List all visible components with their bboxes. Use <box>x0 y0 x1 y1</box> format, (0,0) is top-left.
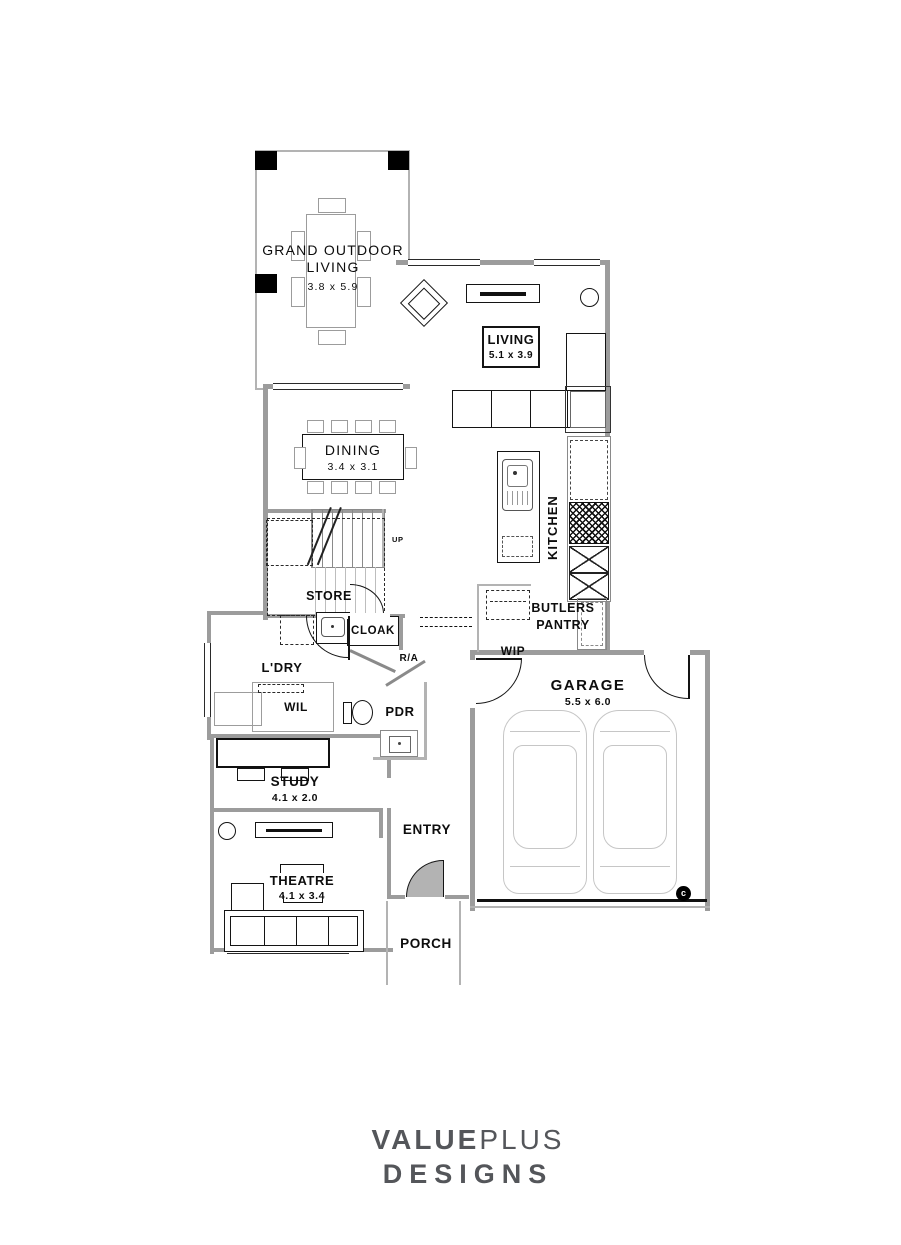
pdr-wall-right <box>424 682 427 760</box>
garage-rear-door-swing <box>644 655 688 699</box>
tv-screen <box>266 829 322 832</box>
wip-wall-h <box>477 584 531 586</box>
copyright-icon: c <box>676 886 691 901</box>
wall-laundry-top <box>207 611 267 615</box>
room-label-store: STORE <box>306 589 352 603</box>
bulkhead-dashed-line <box>420 617 472 618</box>
dining-chair <box>355 481 372 494</box>
room-dims-grand-outdoor-living: 3.8 x 5.9 <box>307 281 358 293</box>
toilet-cistern <box>343 702 352 724</box>
laundry-door-opening <box>346 613 390 619</box>
dining-chair <box>331 481 348 494</box>
room-label-living: LIVING <box>488 332 535 347</box>
window <box>408 259 480 266</box>
wall-garage-right <box>705 650 710 911</box>
room-label-laundry: L'DRY <box>262 660 303 675</box>
laundry-door <box>348 616 350 660</box>
window <box>273 383 403 390</box>
study-desk <box>216 738 330 768</box>
theatre-sofa <box>224 910 364 952</box>
side-table-round <box>580 288 599 307</box>
room-label-cloak: CLOAK <box>351 625 395 637</box>
porch-wall-left <box>386 901 388 985</box>
wip-wall-v <box>477 584 479 652</box>
sofa-seat-inner <box>230 916 358 946</box>
kitchen-sink <box>502 459 533 511</box>
speaker-bracket <box>283 895 323 903</box>
fridge <box>565 386 611 433</box>
pdr-wall-bottom <box>373 757 427 760</box>
dining-chair <box>294 447 306 469</box>
stairs-up-label: UP <box>392 535 404 544</box>
garage-rear-door <box>688 655 690 699</box>
room-label-wip: WIP <box>501 644 525 658</box>
brand-name-light: PLUS <box>479 1124 564 1155</box>
car-roof <box>603 745 667 849</box>
car-bonnet-line <box>600 731 670 732</box>
room-label-kitchen: KITCHEN <box>545 482 560 560</box>
laundry-door-swing <box>306 616 348 658</box>
cooktop <box>569 502 609 544</box>
bulkhead-dashed-line <box>420 626 472 627</box>
room-label-pdr: PDR <box>385 704 414 719</box>
cloak-cupboard: CLOAK <box>347 616 399 646</box>
sofa-seat-line <box>530 391 531 427</box>
room-label-butlers-pantry: BUTLERS PANTRY <box>528 600 598 634</box>
armchair-cushion <box>408 287 441 320</box>
car-rear-line <box>600 866 670 867</box>
room-dims-dining: 3.4 x 3.1 <box>327 461 378 473</box>
dining-chair <box>307 420 324 433</box>
room-dims-study: 4.1 x 2.0 <box>272 792 318 804</box>
sofa-seat-line <box>296 917 297 945</box>
room-label-study: STUDY <box>271 774 320 789</box>
outdoor-chair <box>357 277 371 307</box>
porch-wall-right <box>459 901 461 985</box>
room-label-theatre: THEATRE <box>270 873 335 888</box>
car <box>503 710 587 894</box>
room-dims-living: 5.1 x 3.9 <box>489 350 533 361</box>
sofa-chaise <box>566 333 606 393</box>
wil-shelf <box>258 684 304 693</box>
outdoor-boundary-top <box>256 150 409 152</box>
oven-appliance <box>569 573 609 600</box>
speaker-bracket <box>280 864 324 873</box>
room-label-entry: ENTRY <box>403 822 451 837</box>
floor-plan-page: GRAND OUTDOOR LIVING 3.8 x 5.9 PORCH GAR… <box>0 0 901 1245</box>
pantry-bench-line <box>490 601 526 602</box>
armchair <box>400 279 448 327</box>
toilet <box>352 700 373 725</box>
fridge-inner <box>570 391 606 428</box>
garage-entry-door-swing <box>476 658 522 704</box>
vanity-tap <box>398 742 401 745</box>
room-label-grand-outdoor-living: GRAND OUTDOOR LIVING <box>253 242 413 276</box>
brand-name: VALUEPLUS <box>372 1124 565 1156</box>
dining-chair <box>405 447 417 469</box>
dining-chair <box>355 420 372 433</box>
brand-line2: DESIGNS <box>372 1159 565 1190</box>
post <box>388 151 409 170</box>
tv-unit <box>255 822 333 838</box>
theatre-sofa-chaise <box>231 883 264 912</box>
car-roof <box>513 745 577 849</box>
brand-name-strong: VALUE <box>372 1124 480 1155</box>
window <box>534 259 600 266</box>
post <box>255 151 277 170</box>
wall-study-left <box>210 734 214 954</box>
island-overhang <box>502 536 533 557</box>
tv-unit <box>466 284 540 303</box>
garage-panel-door <box>477 899 707 902</box>
room-label-porch: PORCH <box>400 936 452 951</box>
return-air-label: R/A <box>399 653 418 664</box>
sink-tap <box>513 471 517 475</box>
outdoor-chair <box>318 198 346 213</box>
wall-theatre-top <box>210 808 383 812</box>
sink-drainer <box>507 491 528 505</box>
sink-bowl <box>507 465 528 487</box>
car-bonnet-line <box>510 731 580 732</box>
brand-logo: VALUEPLUS DESIGNS <box>372 1124 565 1190</box>
car <box>593 710 677 894</box>
vanity <box>380 730 418 757</box>
room-label-dining: DINING <box>325 442 381 458</box>
sofa-seat-line <box>264 917 265 945</box>
pantry-bench <box>486 590 530 620</box>
wall-theatre-top-return <box>379 808 383 838</box>
window <box>204 643 211 717</box>
outdoor-chair <box>291 277 305 307</box>
sofa-seat-line <box>491 391 492 427</box>
wall-cloak-right <box>399 614 403 650</box>
overhead-cupboard <box>570 440 608 500</box>
garage-door-outer-line <box>470 906 710 908</box>
tv-screen <box>480 292 526 296</box>
front-door-swing <box>406 860 443 897</box>
dining-chair <box>331 420 348 433</box>
desk-chair <box>237 768 265 781</box>
room-label-garage: GARAGE <box>551 677 626 694</box>
side-table-round <box>218 822 236 840</box>
oven-appliance <box>569 546 609 573</box>
sofa-seat-line <box>328 917 329 945</box>
room-dims-garage: 5.5 x 6.0 <box>565 696 611 708</box>
outdoor-chair <box>318 330 346 345</box>
post <box>255 274 277 293</box>
room-label-wil: WIL <box>284 700 308 714</box>
cloak-door <box>349 649 396 673</box>
living-label-box: LIVING 5.1 x 3.9 <box>482 326 540 368</box>
dining-chair <box>379 420 396 433</box>
wall-entry-right <box>387 808 391 899</box>
car-rear-line <box>510 866 580 867</box>
dining-chair <box>307 481 324 494</box>
dining-chair <box>379 481 396 494</box>
